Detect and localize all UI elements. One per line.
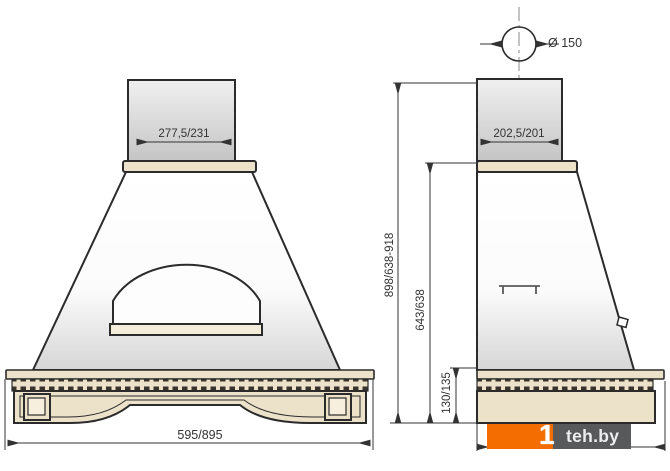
- technical-drawing-page: 277,5/231 202,5/201 Ø 150 595/895 898/63…: [0, 0, 670, 471]
- side-duct: [477, 79, 562, 161]
- front-duct: [128, 80, 235, 161]
- watermark-logo-one-icon: 1: [539, 419, 555, 451]
- dim-label-front-overall-width: 595/895: [177, 428, 222, 442]
- front-dentil-molding: [12, 379, 368, 391]
- dim-label-front-duct-width: 277,5/231: [158, 128, 209, 140]
- side-valance-panel: [477, 391, 655, 423]
- front-cornice-top: [6, 370, 374, 379]
- side-cornice-top: [477, 370, 664, 379]
- side-dentil-molding: [477, 379, 653, 391]
- watermark-logo-text: teh.by: [566, 426, 619, 447]
- front-arch-ledge: [110, 324, 262, 335]
- watermark-text-block: teh.by: [553, 424, 631, 449]
- side-collar: [477, 161, 577, 172]
- side-handle-bump: [617, 317, 628, 328]
- watermark-teh-by: teh.by 1: [487, 424, 631, 449]
- front-collar: [123, 161, 256, 172]
- dim-label-overall-height: 898/638-918: [384, 233, 396, 298]
- side-view: [477, 7, 664, 423]
- dim-label-flue-diameter: Ø 150: [548, 36, 582, 50]
- dim-label-body-height: 643/638: [415, 289, 427, 331]
- hood-technical-drawing: [0, 0, 670, 471]
- dim-label-side-duct-depth: 202,5/201: [493, 128, 544, 140]
- dim-label-cornice-height: 130/135: [441, 372, 453, 414]
